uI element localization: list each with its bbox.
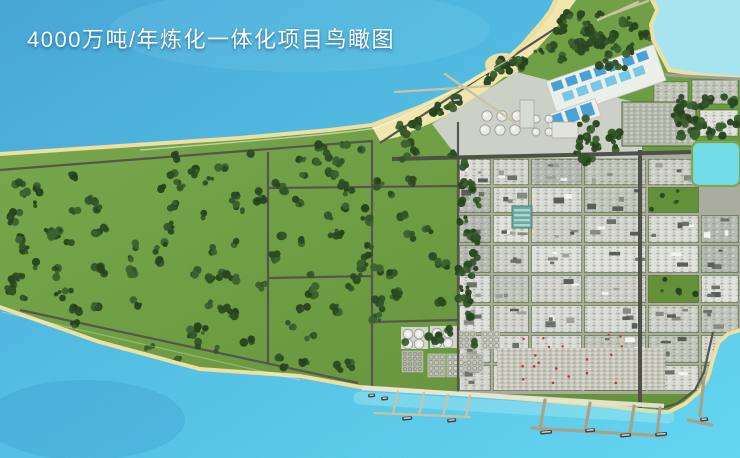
spherical-tank bbox=[532, 128, 540, 136]
plant-structure bbox=[554, 198, 565, 204]
tree bbox=[595, 61, 604, 70]
crane-marker bbox=[567, 375, 570, 378]
plant-structure bbox=[561, 178, 568, 180]
tree bbox=[8, 275, 15, 282]
tree bbox=[161, 184, 166, 189]
tree bbox=[163, 242, 168, 247]
tree bbox=[616, 135, 621, 140]
tree bbox=[464, 219, 468, 223]
tree bbox=[20, 294, 26, 300]
tree bbox=[445, 265, 450, 270]
plant-structure bbox=[590, 230, 600, 234]
tree bbox=[465, 285, 469, 289]
tree bbox=[344, 358, 351, 365]
tree bbox=[604, 63, 612, 71]
storage-tank bbox=[403, 362, 407, 366]
plant-structure bbox=[612, 206, 623, 210]
tree bbox=[132, 267, 137, 272]
plant-structure bbox=[666, 351, 670, 356]
plant-structure bbox=[507, 175, 517, 180]
storage-tank bbox=[413, 362, 417, 366]
plant-structure bbox=[564, 194, 572, 199]
storage-tank bbox=[429, 372, 433, 376]
tree bbox=[467, 313, 475, 321]
tree bbox=[232, 276, 241, 285]
tree bbox=[295, 158, 300, 163]
crane-marker bbox=[607, 334, 609, 336]
tree bbox=[7, 287, 14, 294]
tree bbox=[678, 94, 684, 100]
tree bbox=[577, 48, 584, 55]
tree bbox=[660, 193, 665, 198]
tree bbox=[692, 291, 698, 297]
plant-structure bbox=[503, 197, 508, 201]
tree bbox=[439, 299, 447, 307]
tree bbox=[585, 32, 589, 36]
plant-structure bbox=[548, 257, 558, 260]
tree bbox=[275, 353, 282, 360]
storage-tank bbox=[459, 332, 463, 336]
storage-tank bbox=[478, 355, 482, 359]
tree bbox=[577, 122, 583, 128]
tree bbox=[413, 119, 418, 124]
tree bbox=[575, 143, 583, 151]
tree bbox=[469, 249, 477, 257]
plant-structure bbox=[682, 309, 688, 312]
tree bbox=[509, 57, 516, 64]
tree bbox=[172, 200, 177, 205]
storage-tank bbox=[440, 355, 444, 359]
tree bbox=[465, 289, 472, 296]
tree bbox=[662, 277, 667, 282]
tree bbox=[574, 39, 580, 45]
plant-structure bbox=[607, 173, 612, 175]
tree bbox=[676, 189, 680, 193]
storage-tank bbox=[418, 357, 422, 361]
plant-structure bbox=[679, 372, 688, 375]
plant-structure bbox=[517, 311, 527, 314]
tree bbox=[134, 244, 139, 249]
storage-tank bbox=[403, 352, 407, 356]
plant-structure bbox=[609, 252, 620, 256]
crane-marker bbox=[533, 365, 536, 368]
tree bbox=[675, 200, 678, 203]
crane-marker bbox=[521, 365, 524, 368]
storage-tank bbox=[478, 366, 482, 370]
plant-structure bbox=[605, 338, 610, 340]
tree bbox=[33, 265, 38, 270]
tree bbox=[361, 205, 366, 210]
plant-structure bbox=[632, 323, 638, 328]
aerial-render-view: 4000万吨/年炼化一体化项目鸟瞰图 bbox=[0, 0, 740, 458]
storage-tank bbox=[429, 361, 433, 365]
tree bbox=[215, 345, 220, 350]
tree bbox=[612, 60, 618, 66]
tree bbox=[592, 120, 600, 128]
tree bbox=[534, 50, 538, 54]
storage-tank bbox=[429, 366, 433, 370]
tree bbox=[576, 150, 581, 155]
storage-tank bbox=[448, 366, 452, 370]
plant-structure bbox=[682, 222, 689, 226]
tree bbox=[144, 347, 148, 351]
plant-structure bbox=[587, 204, 596, 210]
plant-structure bbox=[622, 317, 629, 320]
spherical-tank bbox=[495, 125, 505, 135]
tree bbox=[707, 134, 713, 140]
tree bbox=[357, 147, 362, 152]
storage-tank bbox=[478, 361, 482, 365]
storage-tank bbox=[495, 338, 499, 342]
storage-tank bbox=[448, 361, 452, 365]
tree bbox=[192, 271, 199, 278]
tree bbox=[401, 140, 409, 148]
tree bbox=[459, 296, 465, 302]
storage-tank bbox=[483, 344, 487, 348]
tree bbox=[15, 178, 23, 186]
tree bbox=[343, 191, 348, 196]
tree bbox=[332, 160, 337, 165]
tree bbox=[439, 108, 443, 112]
crane-marker bbox=[614, 382, 617, 385]
plant-structure bbox=[562, 254, 569, 258]
tree bbox=[32, 258, 40, 266]
plot-cell bbox=[649, 276, 699, 303]
tree bbox=[600, 12, 604, 16]
tree bbox=[302, 157, 306, 161]
tree bbox=[474, 239, 480, 245]
storage-tank bbox=[467, 361, 471, 365]
storage-tank bbox=[403, 357, 407, 361]
plant-structure bbox=[479, 192, 485, 196]
plant-structure bbox=[707, 294, 714, 297]
storage-tank bbox=[413, 357, 417, 361]
tree bbox=[718, 132, 726, 140]
crane-marker bbox=[610, 353, 613, 356]
tree bbox=[447, 331, 453, 337]
refinery-aerial-illustration bbox=[0, 0, 740, 458]
plant-structure bbox=[555, 235, 559, 238]
crane-marker bbox=[621, 345, 623, 347]
tree bbox=[171, 151, 178, 158]
tree bbox=[128, 256, 134, 262]
tree bbox=[26, 246, 30, 250]
tree bbox=[457, 218, 461, 222]
tree bbox=[255, 187, 263, 195]
plant-structure bbox=[707, 313, 710, 317]
tree bbox=[348, 187, 355, 194]
tree bbox=[339, 230, 345, 236]
tree bbox=[678, 104, 685, 111]
tree bbox=[273, 260, 277, 264]
tree bbox=[360, 216, 365, 221]
tree bbox=[299, 172, 305, 178]
plant-structure bbox=[564, 279, 574, 284]
tree bbox=[721, 94, 728, 101]
tree bbox=[595, 38, 603, 46]
tree bbox=[468, 274, 472, 278]
plant-structure bbox=[656, 312, 664, 316]
tree bbox=[215, 164, 222, 171]
tree bbox=[437, 336, 444, 343]
storage-tank bbox=[448, 372, 452, 376]
storage-tank bbox=[459, 361, 463, 365]
tree bbox=[707, 126, 711, 130]
tree bbox=[100, 224, 108, 232]
tree bbox=[459, 163, 466, 170]
tree bbox=[457, 199, 465, 207]
tree bbox=[33, 200, 37, 204]
plant-structure bbox=[619, 197, 624, 202]
storage-tank bbox=[440, 372, 444, 376]
plant-structure bbox=[478, 178, 488, 182]
tree bbox=[458, 269, 465, 276]
spherical-tank bbox=[510, 125, 520, 135]
plant-structure bbox=[667, 314, 676, 317]
tree bbox=[368, 316, 376, 324]
tree bbox=[589, 27, 594, 32]
plot-cell bbox=[649, 188, 699, 213]
storage-tank bbox=[483, 332, 487, 336]
tree bbox=[399, 291, 403, 295]
plant-structure bbox=[570, 232, 574, 235]
plant-structure bbox=[651, 234, 655, 237]
storage-tank bbox=[459, 372, 463, 376]
tree bbox=[577, 10, 585, 18]
tree bbox=[342, 202, 349, 209]
crane-marker bbox=[548, 346, 550, 348]
tree bbox=[375, 178, 381, 184]
tree bbox=[239, 338, 248, 347]
tree bbox=[676, 134, 682, 140]
storage-tank bbox=[418, 362, 422, 366]
storage-tank bbox=[473, 366, 477, 370]
tree bbox=[249, 152, 253, 156]
tree bbox=[376, 312, 382, 318]
plant-structure bbox=[475, 294, 481, 298]
storage-tank bbox=[467, 366, 471, 370]
tree bbox=[343, 141, 351, 149]
tree bbox=[470, 187, 475, 192]
tree bbox=[627, 16, 631, 20]
tree bbox=[262, 281, 269, 288]
tree bbox=[364, 245, 368, 249]
tree bbox=[292, 196, 299, 203]
tree bbox=[371, 295, 379, 303]
tree bbox=[727, 98, 735, 106]
plant-structure bbox=[566, 317, 574, 323]
tree bbox=[476, 197, 481, 202]
storage-tank bbox=[459, 366, 463, 370]
tree bbox=[585, 138, 591, 144]
storage-tank bbox=[408, 357, 412, 361]
tree bbox=[630, 51, 635, 56]
tree bbox=[156, 256, 163, 263]
plant-structure bbox=[513, 257, 517, 259]
plant-structure bbox=[714, 324, 724, 329]
tree bbox=[205, 273, 213, 281]
tree bbox=[349, 364, 356, 371]
tree bbox=[258, 194, 262, 198]
plant-structure bbox=[552, 252, 557, 254]
tree bbox=[44, 228, 48, 232]
plant-structure bbox=[630, 232, 639, 236]
tree bbox=[401, 338, 409, 346]
tree bbox=[339, 158, 345, 164]
tree bbox=[36, 189, 44, 197]
plant-structure bbox=[613, 288, 619, 290]
storage-tank bbox=[489, 338, 493, 342]
plant-structure bbox=[518, 232, 528, 235]
tree bbox=[324, 211, 332, 219]
storage-tank bbox=[473, 355, 477, 359]
tree bbox=[631, 22, 639, 30]
tree bbox=[19, 190, 26, 197]
tree bbox=[191, 172, 198, 179]
tree bbox=[348, 285, 354, 291]
plant-structure bbox=[597, 226, 605, 229]
tree bbox=[609, 37, 615, 43]
storage-tank bbox=[440, 361, 444, 365]
plant-structure bbox=[550, 262, 554, 265]
tree bbox=[167, 205, 174, 212]
crane-marker bbox=[561, 345, 563, 347]
tree bbox=[613, 43, 618, 48]
plant-structure bbox=[517, 193, 527, 199]
storage-tank bbox=[465, 338, 469, 342]
storage-tank bbox=[465, 332, 469, 336]
tree bbox=[611, 139, 616, 144]
page-title: 4000万吨/年炼化一体化项目鸟瞰图 bbox=[27, 26, 395, 54]
tree bbox=[559, 22, 564, 27]
tree bbox=[240, 210, 245, 215]
tree bbox=[476, 203, 482, 209]
tree bbox=[33, 204, 37, 208]
plant-structure bbox=[508, 199, 513, 203]
tree bbox=[366, 214, 373, 221]
tree bbox=[295, 203, 299, 207]
tree bbox=[304, 336, 310, 342]
tree bbox=[727, 119, 734, 126]
tree bbox=[173, 179, 179, 185]
storage-tank bbox=[448, 355, 452, 359]
tree bbox=[587, 126, 591, 130]
tree bbox=[415, 151, 420, 156]
tree bbox=[68, 239, 75, 246]
crane-marker bbox=[522, 338, 524, 340]
tree bbox=[313, 158, 321, 166]
tree bbox=[691, 133, 699, 141]
tree bbox=[307, 271, 314, 278]
tree bbox=[333, 361, 341, 369]
tree bbox=[91, 198, 99, 206]
plant-structure bbox=[510, 259, 521, 262]
tree bbox=[438, 112, 442, 116]
plant-structure bbox=[592, 178, 596, 184]
tree bbox=[695, 122, 703, 130]
storage-tank bbox=[467, 355, 471, 359]
tree bbox=[560, 13, 567, 20]
tree bbox=[248, 335, 256, 343]
tree bbox=[325, 167, 332, 174]
tree bbox=[230, 312, 239, 321]
tree bbox=[218, 306, 226, 314]
tree bbox=[557, 57, 564, 64]
tree bbox=[332, 307, 339, 314]
tree bbox=[189, 331, 197, 339]
plant-structure bbox=[725, 230, 728, 235]
tree bbox=[206, 176, 210, 180]
plant-structure bbox=[602, 292, 608, 295]
tree bbox=[167, 171, 175, 179]
tree bbox=[314, 140, 323, 149]
tree bbox=[708, 95, 712, 99]
crane-marker bbox=[537, 362, 540, 365]
tree bbox=[365, 252, 372, 259]
tree bbox=[332, 174, 336, 178]
plant-structure bbox=[655, 163, 662, 168]
tree bbox=[68, 288, 74, 294]
tree bbox=[152, 249, 158, 255]
tree bbox=[386, 269, 393, 276]
tree bbox=[25, 251, 29, 255]
tree bbox=[455, 272, 459, 276]
tree bbox=[402, 211, 408, 217]
tree bbox=[545, 44, 551, 50]
tree bbox=[19, 273, 25, 279]
tree bbox=[463, 215, 467, 219]
plant-structure bbox=[677, 169, 682, 172]
tree bbox=[582, 114, 590, 122]
tree bbox=[415, 124, 421, 130]
tree bbox=[685, 114, 691, 120]
tree bbox=[37, 185, 41, 189]
plant-structure bbox=[464, 320, 474, 324]
tree bbox=[639, 37, 643, 41]
tree bbox=[97, 266, 104, 273]
plant-structure bbox=[678, 337, 687, 341]
tree bbox=[298, 237, 304, 243]
tree bbox=[357, 260, 365, 268]
tree bbox=[702, 100, 709, 107]
storage-tank bbox=[489, 332, 493, 336]
tree bbox=[299, 359, 307, 367]
tree bbox=[208, 300, 213, 305]
plant-structure bbox=[499, 170, 504, 176]
storage-tank bbox=[435, 366, 439, 370]
tree bbox=[59, 295, 66, 302]
tree bbox=[71, 173, 78, 180]
storage-tank bbox=[408, 352, 412, 356]
tree bbox=[328, 233, 334, 239]
tree bbox=[722, 123, 727, 128]
plant-structure bbox=[552, 122, 578, 138]
tree bbox=[177, 184, 184, 191]
tree bbox=[605, 51, 609, 55]
plant-structure bbox=[677, 262, 688, 266]
tree bbox=[702, 94, 709, 101]
tree bbox=[463, 233, 467, 237]
tree bbox=[399, 156, 406, 163]
plant-structure bbox=[504, 294, 508, 298]
tree bbox=[594, 141, 598, 145]
storage-tank bbox=[473, 361, 477, 365]
plant-structure bbox=[510, 309, 519, 312]
tree bbox=[194, 322, 202, 330]
crane-marker bbox=[534, 354, 537, 357]
tree bbox=[15, 236, 23, 244]
tree bbox=[134, 303, 141, 310]
